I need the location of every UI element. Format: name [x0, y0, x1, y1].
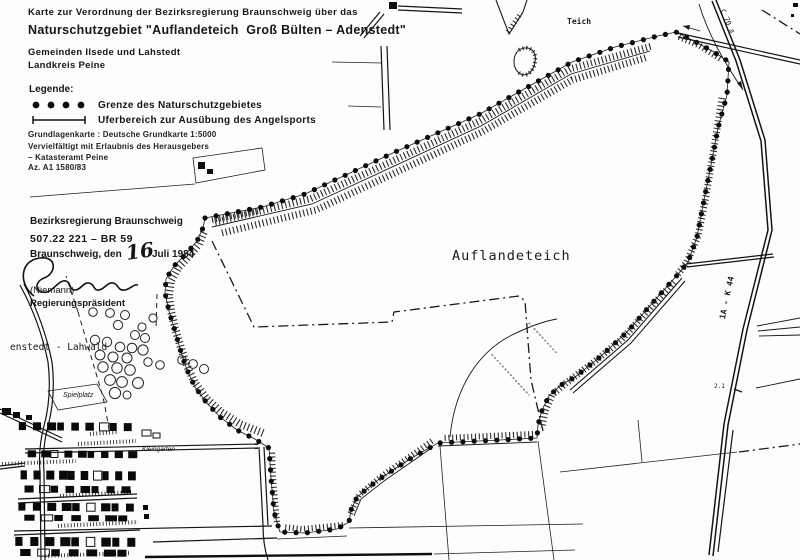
- signer-name: (Niemann): [30, 286, 74, 297]
- sandbank-stipple: [491, 322, 556, 395]
- source-note-base-map: Grundlagenkarte : Deutsche Grundkarte 1:…: [28, 130, 216, 139]
- legend-item-bank-label: Uferbereich zur Ausübung des Angelsports: [98, 115, 316, 126]
- handwritten-date-day: 16: [125, 238, 156, 265]
- map-title-line2: Naturschutzgebiet "Auflandeteich Groß Bü…: [28, 23, 406, 37]
- legend-item-boundary-label: Grenze des Naturschutzgebietes: [98, 100, 262, 111]
- scanned-map-canvas: [0, 0, 800, 560]
- map-subtitle-district: Landkreis Peine: [28, 61, 105, 72]
- label-teich: Teich: [567, 17, 591, 26]
- map-sheet: Karte zur Verordnung der Bezirksregierun…: [0, 0, 800, 560]
- map-title-line1: Karte zur Verordnung der Bezirksregierun…: [28, 8, 358, 19]
- bank-bracket-symbol: [30, 114, 88, 126]
- label-elevation-2-1: 2.1: [714, 384, 725, 391]
- map-subtitle-municipalities: Gemeinden Ilsede und Lahstedt: [28, 48, 180, 59]
- authority-place-date: Braunschweig, den: [30, 249, 122, 261]
- misc-marks: [145, 2, 798, 557]
- label-spielplatz: Spielplatz: [63, 392, 93, 400]
- label-kleingarten: Kleingarten: [142, 446, 175, 453]
- authority-date-month-year: Juli 1984: [152, 249, 194, 261]
- dike-hatching: [169, 13, 722, 529]
- legend-item-bank: Uferbereich zur Ausübung des Angelsports: [30, 114, 316, 126]
- source-note-office: – Katasteramt Peine: [28, 153, 108, 162]
- signer-title: Regierungspräsident: [30, 299, 125, 310]
- source-note-file-number: Az. A1 1580/83: [28, 163, 86, 172]
- source-note-permission: Vervielfältigt mit Erlaubnis des Herausg…: [28, 142, 209, 151]
- municipal-boundary-dashdot: [212, 10, 800, 452]
- label-auflandeteich: Auflandeteich: [452, 249, 571, 265]
- legend-title: Legende:: [29, 84, 73, 96]
- legend-item-boundary: Grenze des Naturschutzgebietes: [30, 99, 262, 111]
- authority-file-ref: 507.22 221 – BR 59: [30, 233, 133, 245]
- label-village-lahwald: enstedt - Lahwald: [10, 343, 107, 354]
- boundary-dots-symbol: [30, 99, 88, 111]
- authority-name: Bezirksregierung Braunschweig: [30, 216, 183, 228]
